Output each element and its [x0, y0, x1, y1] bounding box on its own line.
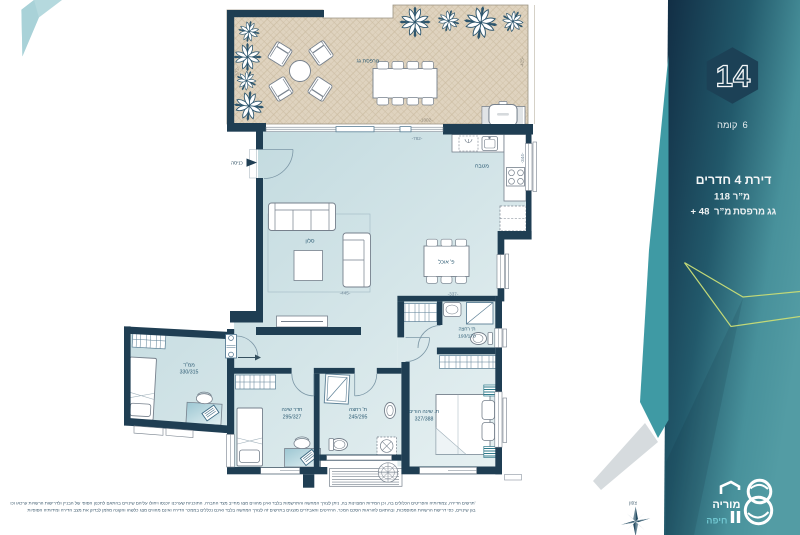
svg-text:מוריה: מוריה [712, 499, 740, 511]
svg-text:חדר שינה: חדר שינה [282, 407, 303, 413]
svg-text:245/295: 245/295 [349, 415, 368, 421]
svg-text:6: 6 [743, 119, 748, 130]
svg-text:מ”ר: מ”ר [714, 207, 731, 218]
svg-text:295/327: 295/327 [283, 415, 302, 421]
svg-text:118 מ”ר: 118 מ”ר [714, 192, 750, 203]
svg-text:-782-: -782- [412, 136, 423, 141]
svg-text:דירת 4 חדרים: דירת 4 חדרים [696, 173, 772, 187]
svg-text:גג: גג [767, 207, 777, 218]
svg-text:327/388: 327/388 [415, 417, 434, 423]
svg-text:-344-: -344- [520, 152, 525, 163]
svg-text:-425-: -425- [520, 56, 525, 67]
svg-text:ת' רחצה: ת' רחצה [458, 327, 475, 333]
svg-text:קומה: קומה [717, 119, 738, 130]
svg-text:-445-: -445- [340, 291, 351, 296]
svg-text:-1002-: -1002- [419, 118, 433, 123]
svg-text:ת' רחצה: ת' רחצה [349, 407, 368, 413]
svg-text:כניסה: כניסה [231, 162, 243, 167]
svg-text:תרשים הדירה, צמודותיה והפריטים: תרשים הדירה, צמודותיה והפריטים הכלולים ב… [10, 501, 475, 506]
svg-text:צפון: צפון [629, 501, 637, 506]
svg-text:14: 14 [716, 59, 751, 94]
svg-text:ת. שינה הורים: ת. שינה הורים [409, 409, 440, 415]
svg-text:330/315: 330/315 [180, 370, 199, 376]
svg-text:ממ”ד: ממ”ד [183, 363, 195, 369]
svg-text:מרפסת גג: מרפסת גג [357, 59, 380, 65]
svg-text:-337-: -337- [448, 292, 459, 297]
svg-text:פ' אוכל: פ' אוכל [438, 259, 454, 266]
svg-text:מרפסת: מרפסת [733, 207, 765, 218]
svg-text:193/170: 193/170 [458, 334, 476, 340]
svg-text:מטבח: מטבח [475, 164, 489, 170]
svg-text:חיפה: חיפה [706, 516, 727, 526]
svg-text:בגן שינויים, כפי דרישת הרשויות: בגן שינויים, כפי דרישת הרשויות המוסמכות,… [27, 508, 475, 513]
svg-text:-372-: -372- [235, 66, 240, 77]
svg-text:+ 48: + 48 [691, 207, 711, 218]
svg-text:סלון: סלון [305, 238, 315, 245]
